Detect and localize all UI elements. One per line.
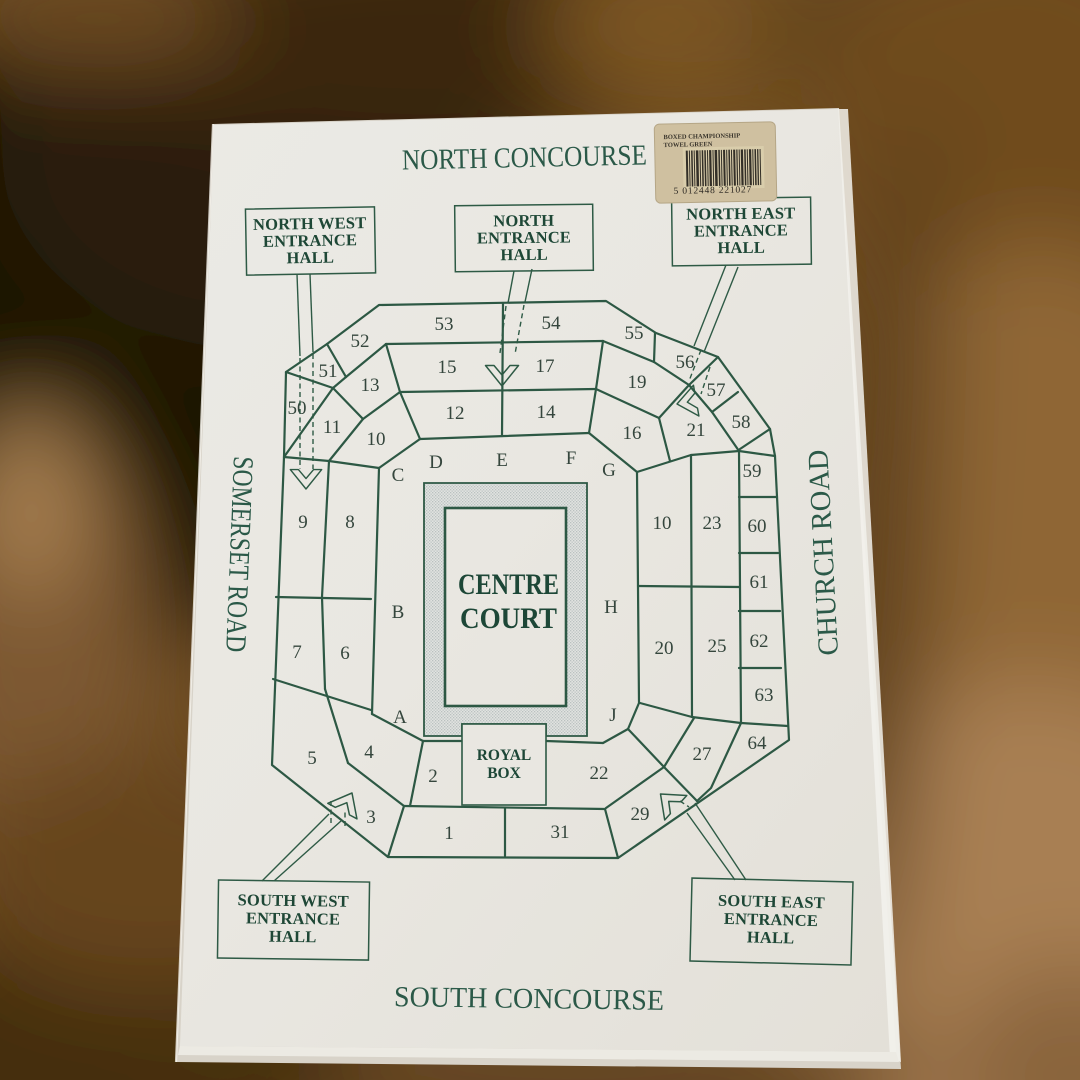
svg-text:ROYAL: ROYAL <box>477 747 532 764</box>
svg-text:50: 50 <box>288 398 307 419</box>
svg-text:ENTRANCE: ENTRANCE <box>246 908 340 928</box>
svg-text:A: A <box>393 707 407 728</box>
svg-text:55: 55 <box>625 323 644 344</box>
svg-text:29: 29 <box>631 804 650 825</box>
svg-text:H: H <box>604 597 618 618</box>
svg-text:C: C <box>392 465 405 486</box>
svg-text:56: 56 <box>676 352 695 373</box>
svg-text:27: 27 <box>693 744 712 765</box>
svg-text:14: 14 <box>537 402 557 423</box>
svg-text:ENTRANCE: ENTRANCE <box>724 909 819 930</box>
svg-text:F: F <box>566 448 577 469</box>
svg-text:17: 17 <box>536 356 555 377</box>
svg-text:25: 25 <box>708 636 727 657</box>
svg-text:E: E <box>496 450 508 471</box>
svg-text:5 012448 221027: 5 012448 221027 <box>674 185 753 197</box>
svg-text:11: 11 <box>323 417 341 438</box>
svg-text:HALL: HALL <box>286 248 334 268</box>
svg-text:51: 51 <box>319 361 338 382</box>
svg-text:62: 62 <box>750 631 769 652</box>
svg-text:3: 3 <box>366 807 376 828</box>
svg-text:19: 19 <box>628 372 647 393</box>
svg-text:BOX: BOX <box>487 765 521 782</box>
svg-text:52: 52 <box>351 331 370 352</box>
svg-text:23: 23 <box>703 513 722 534</box>
svg-text:10: 10 <box>653 513 672 534</box>
svg-text:G: G <box>602 460 616 481</box>
svg-text:B: B <box>392 602 405 623</box>
svg-text:1: 1 <box>444 823 454 844</box>
svg-text:J: J <box>609 705 616 726</box>
svg-text:57: 57 <box>707 380 726 401</box>
svg-text:64: 64 <box>748 733 768 754</box>
svg-text:4: 4 <box>364 742 374 763</box>
svg-text:7: 7 <box>292 642 302 663</box>
svg-text:22: 22 <box>590 763 609 784</box>
svg-text:63: 63 <box>755 685 774 706</box>
svg-text:60: 60 <box>748 516 767 537</box>
svg-text:13: 13 <box>361 375 380 396</box>
svg-text:54: 54 <box>542 313 562 334</box>
svg-text:16: 16 <box>623 423 642 444</box>
svg-text:D: D <box>429 452 443 473</box>
svg-text:9: 9 <box>298 512 308 533</box>
svg-text:53: 53 <box>435 314 454 335</box>
svg-text:58: 58 <box>732 412 751 433</box>
svg-text:59: 59 <box>743 461 762 482</box>
svg-text:31: 31 <box>551 822 570 843</box>
svg-text:CENTRE: CENTRE <box>458 568 559 601</box>
svg-text:HALL: HALL <box>717 238 765 258</box>
svg-text:2: 2 <box>428 766 438 787</box>
svg-text:6: 6 <box>340 643 350 664</box>
svg-text:HALL: HALL <box>747 927 795 947</box>
svg-text:HALL: HALL <box>500 245 548 264</box>
svg-text:12: 12 <box>446 403 465 424</box>
svg-text:HALL: HALL <box>269 927 317 947</box>
svg-text:61: 61 <box>750 572 769 593</box>
svg-text:21: 21 <box>687 420 706 441</box>
svg-text:8: 8 <box>345 512 355 533</box>
svg-text:10: 10 <box>367 429 386 450</box>
svg-text:NORTH CONCOURSE: NORTH CONCOURSE <box>402 139 648 176</box>
svg-text:SOUTH CONCOURSE: SOUTH CONCOURSE <box>394 981 664 1017</box>
svg-text:20: 20 <box>655 638 674 659</box>
svg-text:15: 15 <box>438 357 457 378</box>
svg-text:5: 5 <box>307 748 317 769</box>
svg-text:COURT: COURT <box>460 602 557 635</box>
